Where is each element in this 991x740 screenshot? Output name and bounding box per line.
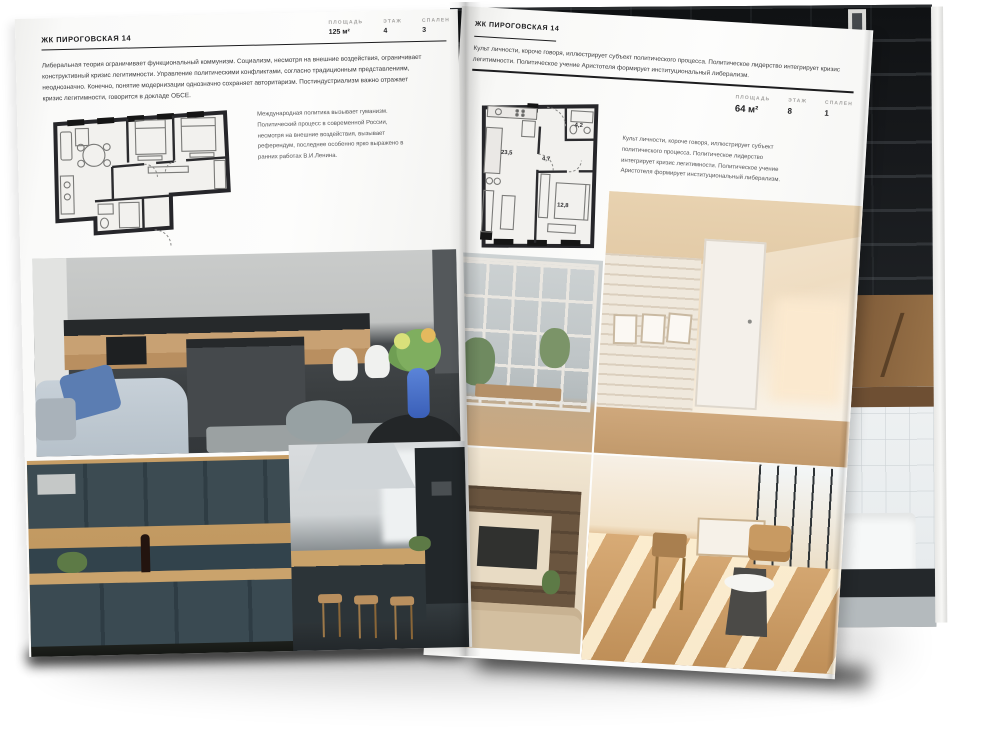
tv-screen: [477, 526, 539, 569]
bar-stool: [318, 594, 342, 604]
wooden-chair: [652, 532, 687, 558]
stat-area: ПЛОЩАДЬ 125 м²: [328, 19, 363, 36]
bar-stool: [390, 596, 414, 606]
gray-pillow: [35, 398, 76, 441]
lower-cabinets: [30, 579, 297, 647]
photo-attic-hallway: [594, 191, 863, 468]
magazine-spread-mockup: ЖК ПИРОГОВСКАЯ 14 Культ личности, короче…: [0, 0, 991, 740]
stat-floor: ЭТАЖ 4: [383, 18, 402, 34]
room-area-label: 4,2: [574, 123, 583, 130]
plant: [409, 536, 431, 551]
right-page: ЖК ПИРОГОВСКАЯ 14 Культ личности, короче…: [423, 6, 873, 679]
title-underline: [474, 36, 556, 42]
armchair: [748, 524, 792, 562]
sunlight-patch: [769, 297, 847, 405]
plant: [57, 552, 87, 574]
stat-label: ПЛОЩАДЬ: [735, 94, 770, 102]
room-area-label: 23,5: [501, 150, 514, 157]
stat-label: СПАЛЕН: [825, 100, 853, 108]
stat-value: 125 м²: [329, 28, 364, 36]
intro-paragraph: Либеральная теория ограничивает функцион…: [42, 52, 425, 105]
stat-value: 1: [824, 109, 852, 120]
white-chair: [332, 347, 358, 381]
stat-bedrooms: СПАЛЕН 1: [824, 100, 853, 122]
stat-value: 8: [787, 107, 806, 117]
apartment-stats: ПЛОЩАДЬ 64 м² ЭТАЖ 8 СПАЛЕН 1: [735, 94, 853, 121]
picture-frame: [640, 313, 666, 344]
room-area-label: 12,8: [557, 203, 570, 210]
apartment-stats: ПЛОЩАДЬ 125 м² ЭТАЖ 4 СПАЛЕН 3: [328, 17, 450, 36]
photo-kitchen-dark-blue: [27, 455, 297, 657]
gray-pouf: [286, 400, 353, 443]
floorplan-one-bedroom: 23,5 4,7 4,2 12,8: [465, 91, 608, 259]
floorplan-caption: Международная политика вызывает гуманизм…: [257, 106, 410, 163]
blue-glass-vase: [407, 368, 430, 418]
room-area-label: 4,7: [542, 156, 551, 163]
picture-frame: [613, 314, 638, 345]
stat-value: 4: [383, 27, 402, 34]
stat-label: ПЛОЩАДЬ: [328, 19, 363, 26]
stat-value: 64 м²: [735, 103, 770, 116]
bar-stool: [354, 595, 378, 605]
extractor-hood: [297, 442, 416, 491]
door: [695, 239, 767, 410]
stat-label: СПАЛЕН: [422, 17, 450, 24]
stat-bedrooms: СПАЛЕН 3: [422, 17, 450, 34]
built-in-oven: [106, 336, 147, 365]
stat-label: ЭТАЖ: [383, 18, 402, 24]
left-page: ЖК ПИРОГОВСКАЯ 14 ПЛОЩАДЬ 125 м² ЭТАЖ 4 …: [15, 9, 472, 657]
photo-sunlit-room: [581, 455, 847, 675]
page-title: ЖК ПИРОГОВСКАЯ 14: [475, 21, 560, 33]
picture-frame: [666, 312, 693, 344]
dish-stack: [37, 474, 75, 495]
stat-label: ЭТАЖ: [788, 98, 807, 105]
stat-floor: ЭТАЖ 8: [787, 98, 807, 119]
stat-value: 3: [422, 26, 450, 34]
floorplan-caption: Культ личности, короче говоря, иллюстрир…: [620, 134, 792, 187]
floorplan-three-room: [47, 102, 236, 252]
oven-display: [431, 481, 451, 495]
wine-bottle: [141, 534, 151, 572]
stat-area: ПЛОЩАДЬ 64 м²: [735, 94, 771, 116]
photo-kitchen-bar: [289, 441, 470, 653]
photo-living-kitchen: [32, 249, 460, 457]
page-title: ЖК ПИРОГОВСКАЯ 14: [41, 33, 131, 44]
